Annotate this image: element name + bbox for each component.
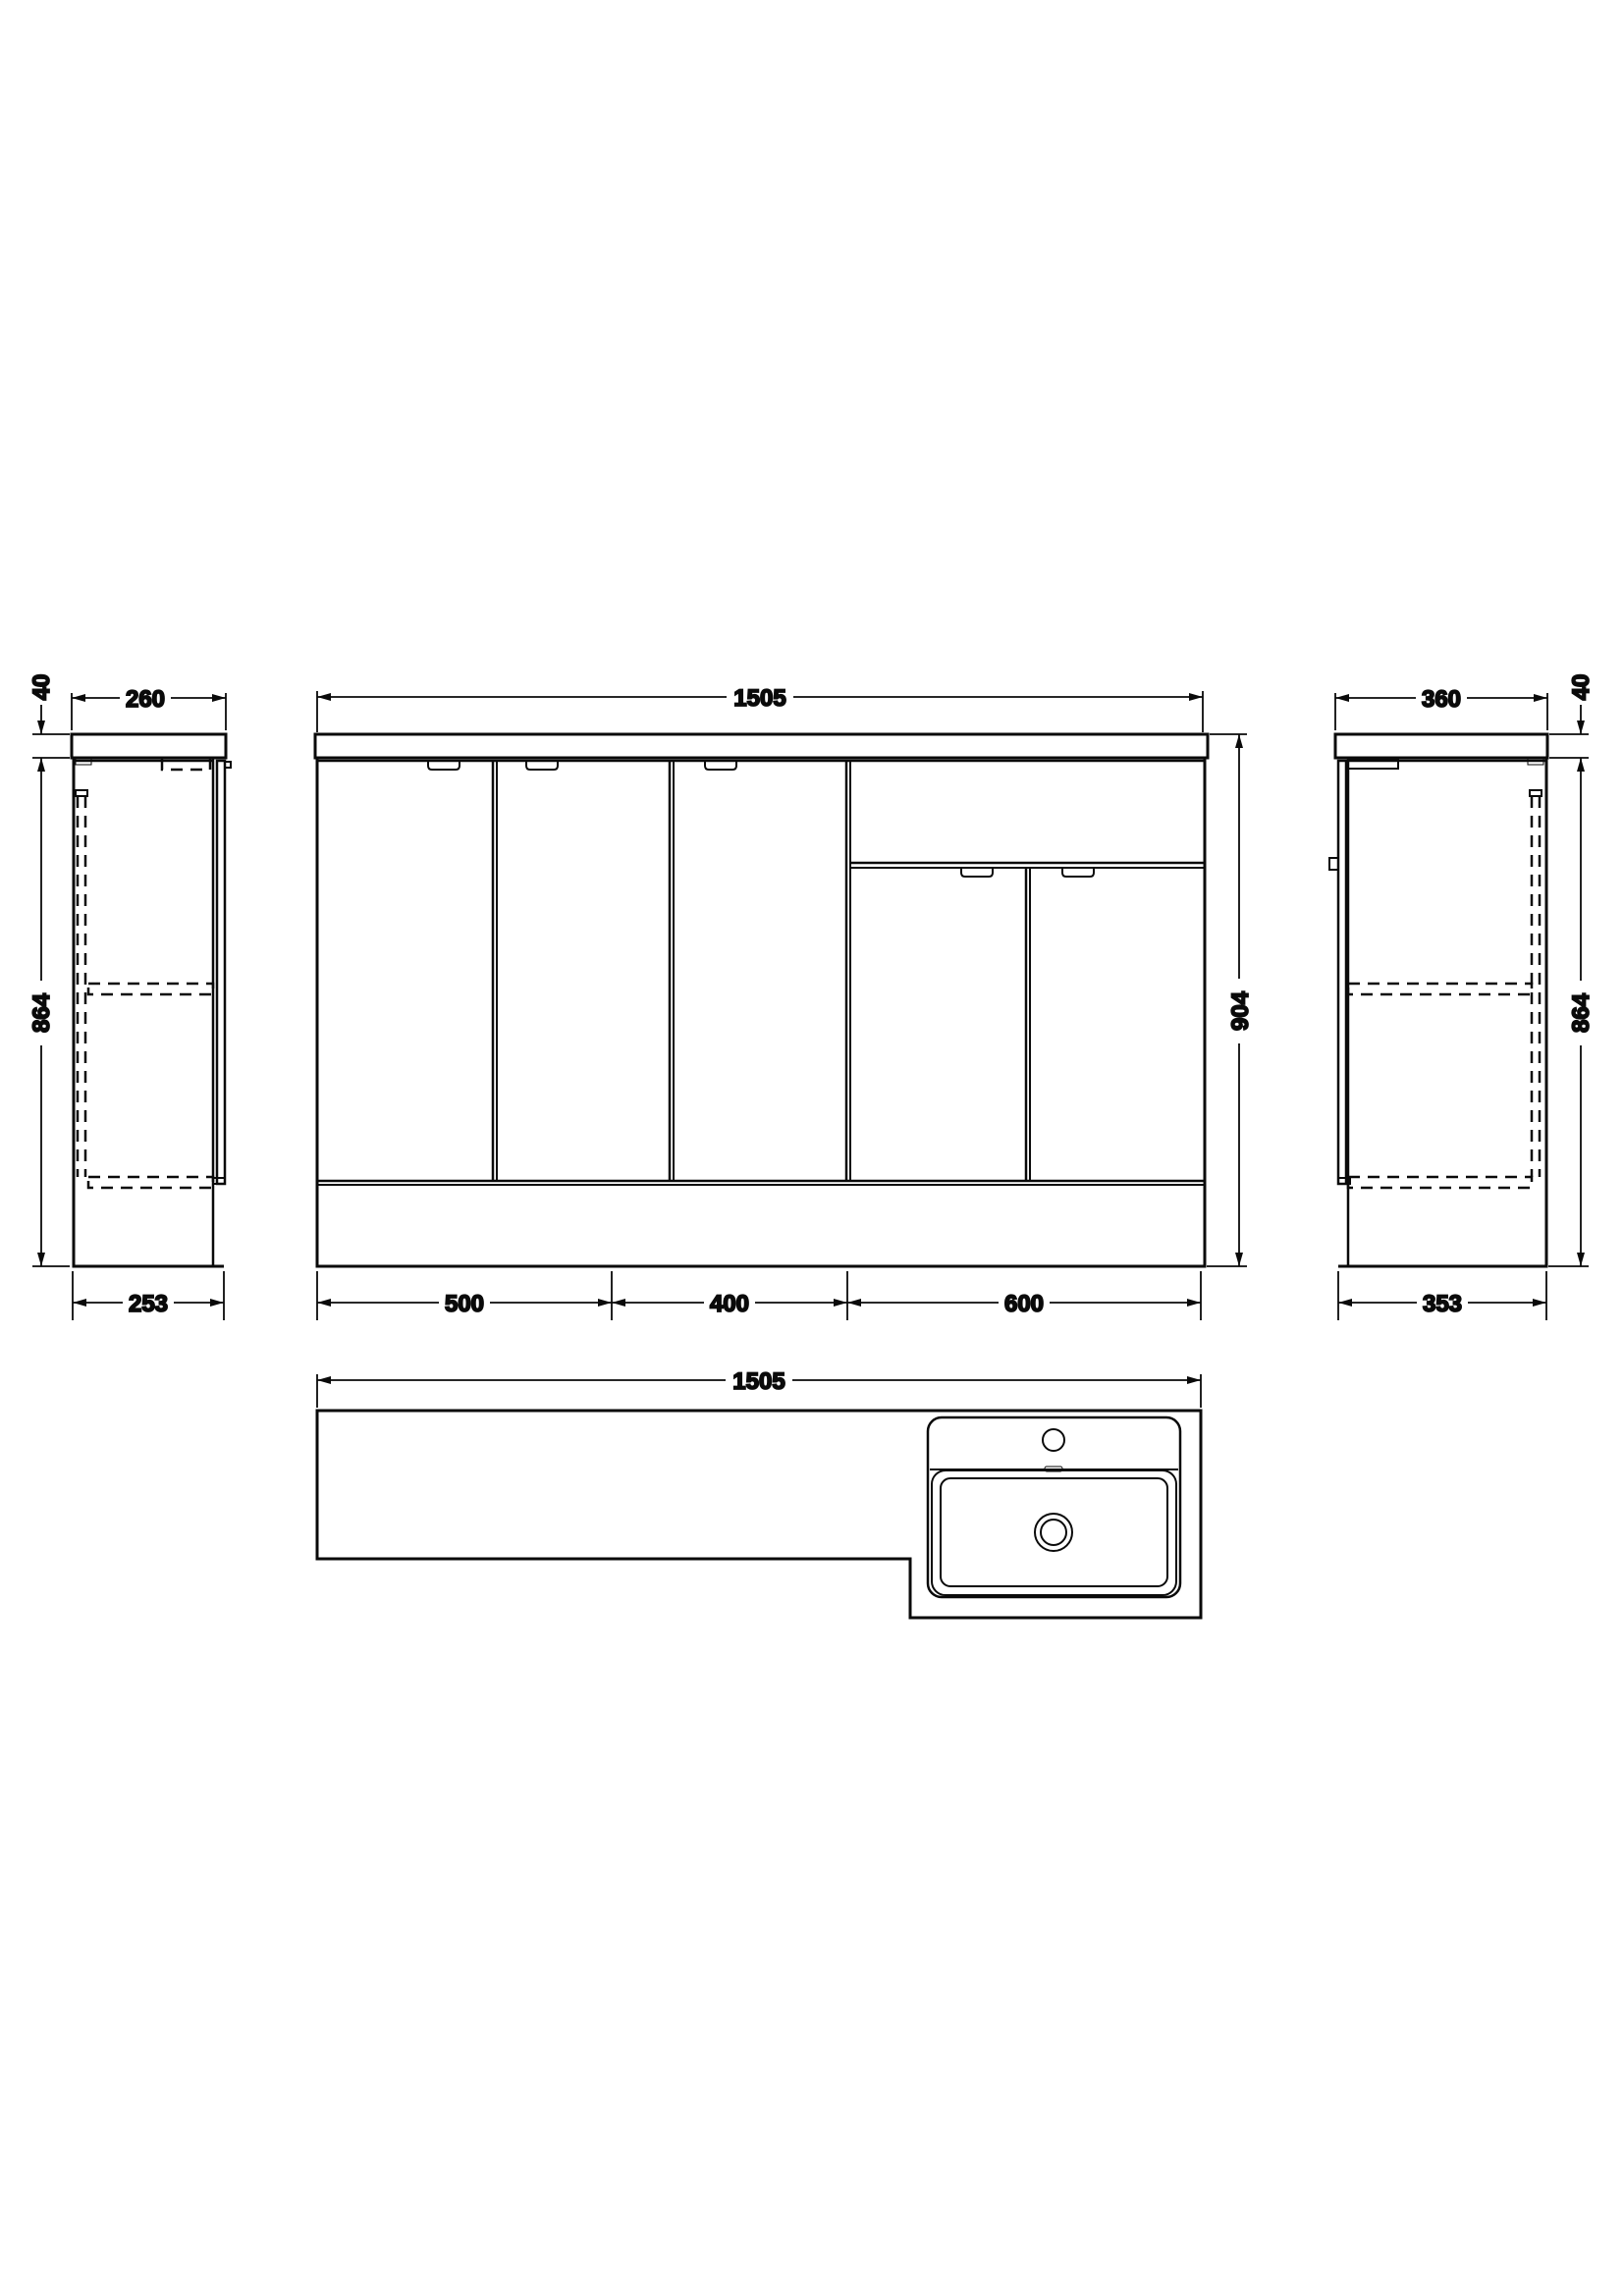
dim-label: 864	[1568, 992, 1595, 1033]
right-side-view	[1329, 734, 1547, 1266]
dim-left-top-depth: 260	[72, 685, 226, 730]
door-handle	[526, 761, 558, 770]
dim-right-worktop-thickness: 40	[1549, 669, 1595, 758]
left-side-door-panel	[217, 761, 225, 1184]
basin	[928, 1417, 1180, 1597]
dim-label: 600	[1004, 1291, 1044, 1317]
dim-label: 40	[28, 674, 55, 701]
dim-label: 253	[129, 1291, 168, 1317]
back-panel-cap	[76, 790, 87, 796]
basin-rim	[928, 1417, 1180, 1597]
front-worktop	[315, 734, 1208, 758]
back-panel-cap	[1530, 790, 1542, 796]
door-handle	[961, 869, 993, 877]
hidden-shelf	[1348, 984, 1532, 994]
vanity-drawing: 1505 904	[0, 0, 1623, 2296]
dim-left-base-depth: 253	[73, 1271, 224, 1320]
right-side-worktop	[1335, 734, 1547, 758]
dim-label: 904	[1227, 990, 1254, 1031]
dim-front-overall-height: 904	[1207, 734, 1254, 1266]
waste-hole-inner	[1041, 1520, 1066, 1545]
hidden-bottom-shelf	[1348, 1177, 1532, 1188]
dim-label: 40	[1568, 674, 1595, 701]
door-handle	[1062, 869, 1094, 877]
dim-label: 500	[445, 1291, 484, 1317]
dim-right-cabinet-height: 864	[1548, 758, 1595, 1266]
dim-right-top-depth: 360	[1335, 685, 1547, 730]
hidden-bottom-shelf	[88, 1177, 213, 1188]
basin-bowl-outer	[932, 1470, 1176, 1595]
left-side-view	[72, 734, 231, 1266]
dim-label: 1505	[733, 685, 785, 712]
handle-profile	[1329, 858, 1338, 870]
left-side-worktop	[72, 734, 226, 758]
dim-label: 260	[126, 686, 165, 713]
basin-bowl-inner	[941, 1478, 1167, 1586]
dim-left-cabinet-height: 864	[27, 758, 70, 1266]
tap-hole	[1043, 1429, 1064, 1451]
right-side-door-panel	[1338, 761, 1346, 1184]
plan-view	[317, 1411, 1201, 1618]
door-handle	[428, 761, 460, 770]
hidden-shelf	[88, 984, 213, 994]
dim-label: 864	[28, 992, 55, 1033]
dim-front-unit-widths: 500 400 600	[317, 1271, 1201, 1320]
dim-right-base-depth: 353	[1338, 1271, 1546, 1320]
left-side-carcass	[74, 758, 224, 1266]
dim-label: 1505	[732, 1368, 784, 1395]
dimensions: 1505 904	[27, 669, 1595, 1408]
dim-label: 400	[710, 1291, 749, 1317]
dim-left-worktop-thickness: 40	[27, 669, 70, 758]
dim-front-overall-width: 1505	[317, 684, 1203, 732]
dim-label: 353	[1423, 1291, 1462, 1317]
right-side-carcass	[1338, 758, 1546, 1266]
door-handle	[705, 761, 736, 770]
front-cabinet-outline	[317, 758, 1205, 1266]
technical-drawing-canvas: 1505 904	[0, 0, 1623, 2296]
dim-plan-overall-width: 1505	[317, 1367, 1201, 1408]
door-bottom-notch	[213, 1178, 225, 1184]
dim-label: 360	[1422, 686, 1461, 713]
front-elevation-view	[315, 734, 1208, 1266]
